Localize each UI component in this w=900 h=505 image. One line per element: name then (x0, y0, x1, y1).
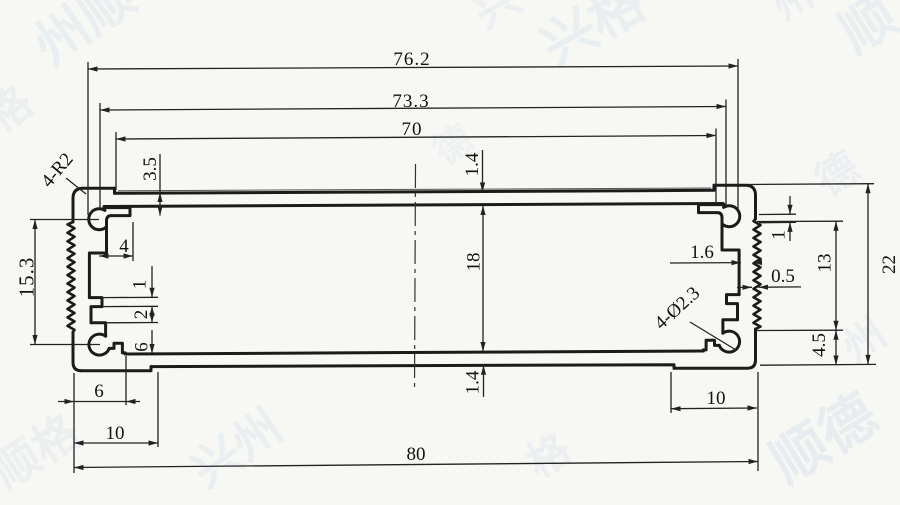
svg-text:0.5: 0.5 (771, 266, 795, 287)
svg-text:格: 格 (519, 425, 580, 487)
svg-text:州: 州 (766, 0, 820, 30)
svg-text:70: 70 (402, 119, 423, 140)
svg-text:6: 6 (94, 381, 104, 402)
svg-text:4.5: 4.5 (809, 333, 830, 357)
svg-text:兴格: 兴格 (531, 0, 655, 77)
svg-text:4-R2: 4-R2 (37, 149, 78, 192)
svg-text:兴: 兴 (465, 0, 530, 38)
svg-text:顺格: 顺格 (0, 405, 90, 498)
svg-text:2: 2 (131, 310, 152, 320)
svg-text:州: 州 (835, 310, 895, 371)
svg-text:1.4: 1.4 (462, 152, 483, 176)
svg-text:6: 6 (132, 342, 153, 352)
svg-text:13: 13 (815, 254, 836, 273)
svg-text:10: 10 (106, 423, 125, 444)
svg-text:州顺: 州顺 (23, 0, 146, 77)
svg-text:格: 格 (0, 77, 43, 143)
svg-text:18: 18 (464, 253, 485, 272)
svg-text:4: 4 (119, 236, 129, 257)
svg-text:3.5: 3.5 (140, 157, 161, 181)
svg-text:73.3: 73.3 (392, 91, 429, 112)
svg-text:76.2: 76.2 (393, 49, 430, 70)
svg-text:兴州: 兴州 (183, 400, 292, 498)
svg-text:15.3: 15.3 (15, 257, 39, 298)
svg-text:80: 80 (407, 444, 426, 465)
svg-text:顺: 顺 (830, 0, 900, 64)
svg-text:22: 22 (879, 255, 900, 274)
svg-text:10: 10 (707, 388, 726, 409)
svg-text:1: 1 (769, 230, 790, 240)
svg-text:顺德: 顺德 (761, 384, 889, 496)
svg-text:1.6: 1.6 (690, 242, 714, 263)
svg-text:1: 1 (130, 280, 151, 290)
svg-text:1.4: 1.4 (463, 370, 484, 394)
svg-text:德: 德 (807, 144, 868, 206)
